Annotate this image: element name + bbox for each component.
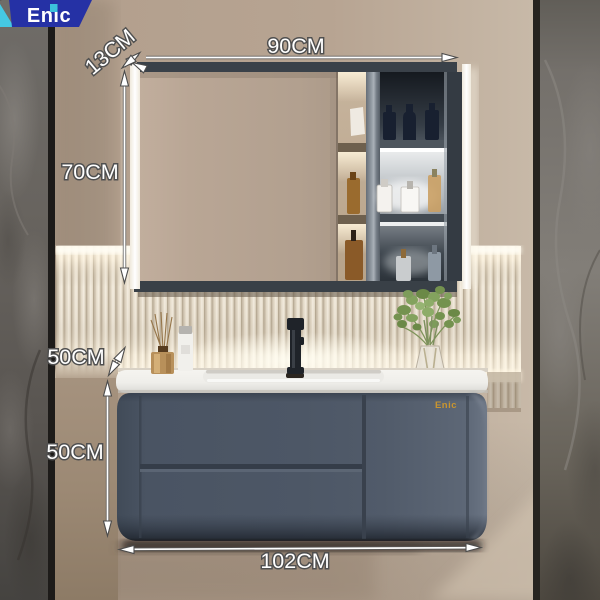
- svg-text:102CM: 102CM: [260, 549, 329, 573]
- svg-text:50CM: 50CM: [47, 345, 104, 369]
- svg-text:Enic: Enic: [435, 400, 457, 411]
- svg-text:70CM: 70CM: [61, 160, 118, 184]
- svg-text:50CM: 50CM: [46, 440, 103, 464]
- svg-text:Enic: Enic: [27, 5, 71, 27]
- svg-text:90CM: 90CM: [267, 34, 324, 58]
